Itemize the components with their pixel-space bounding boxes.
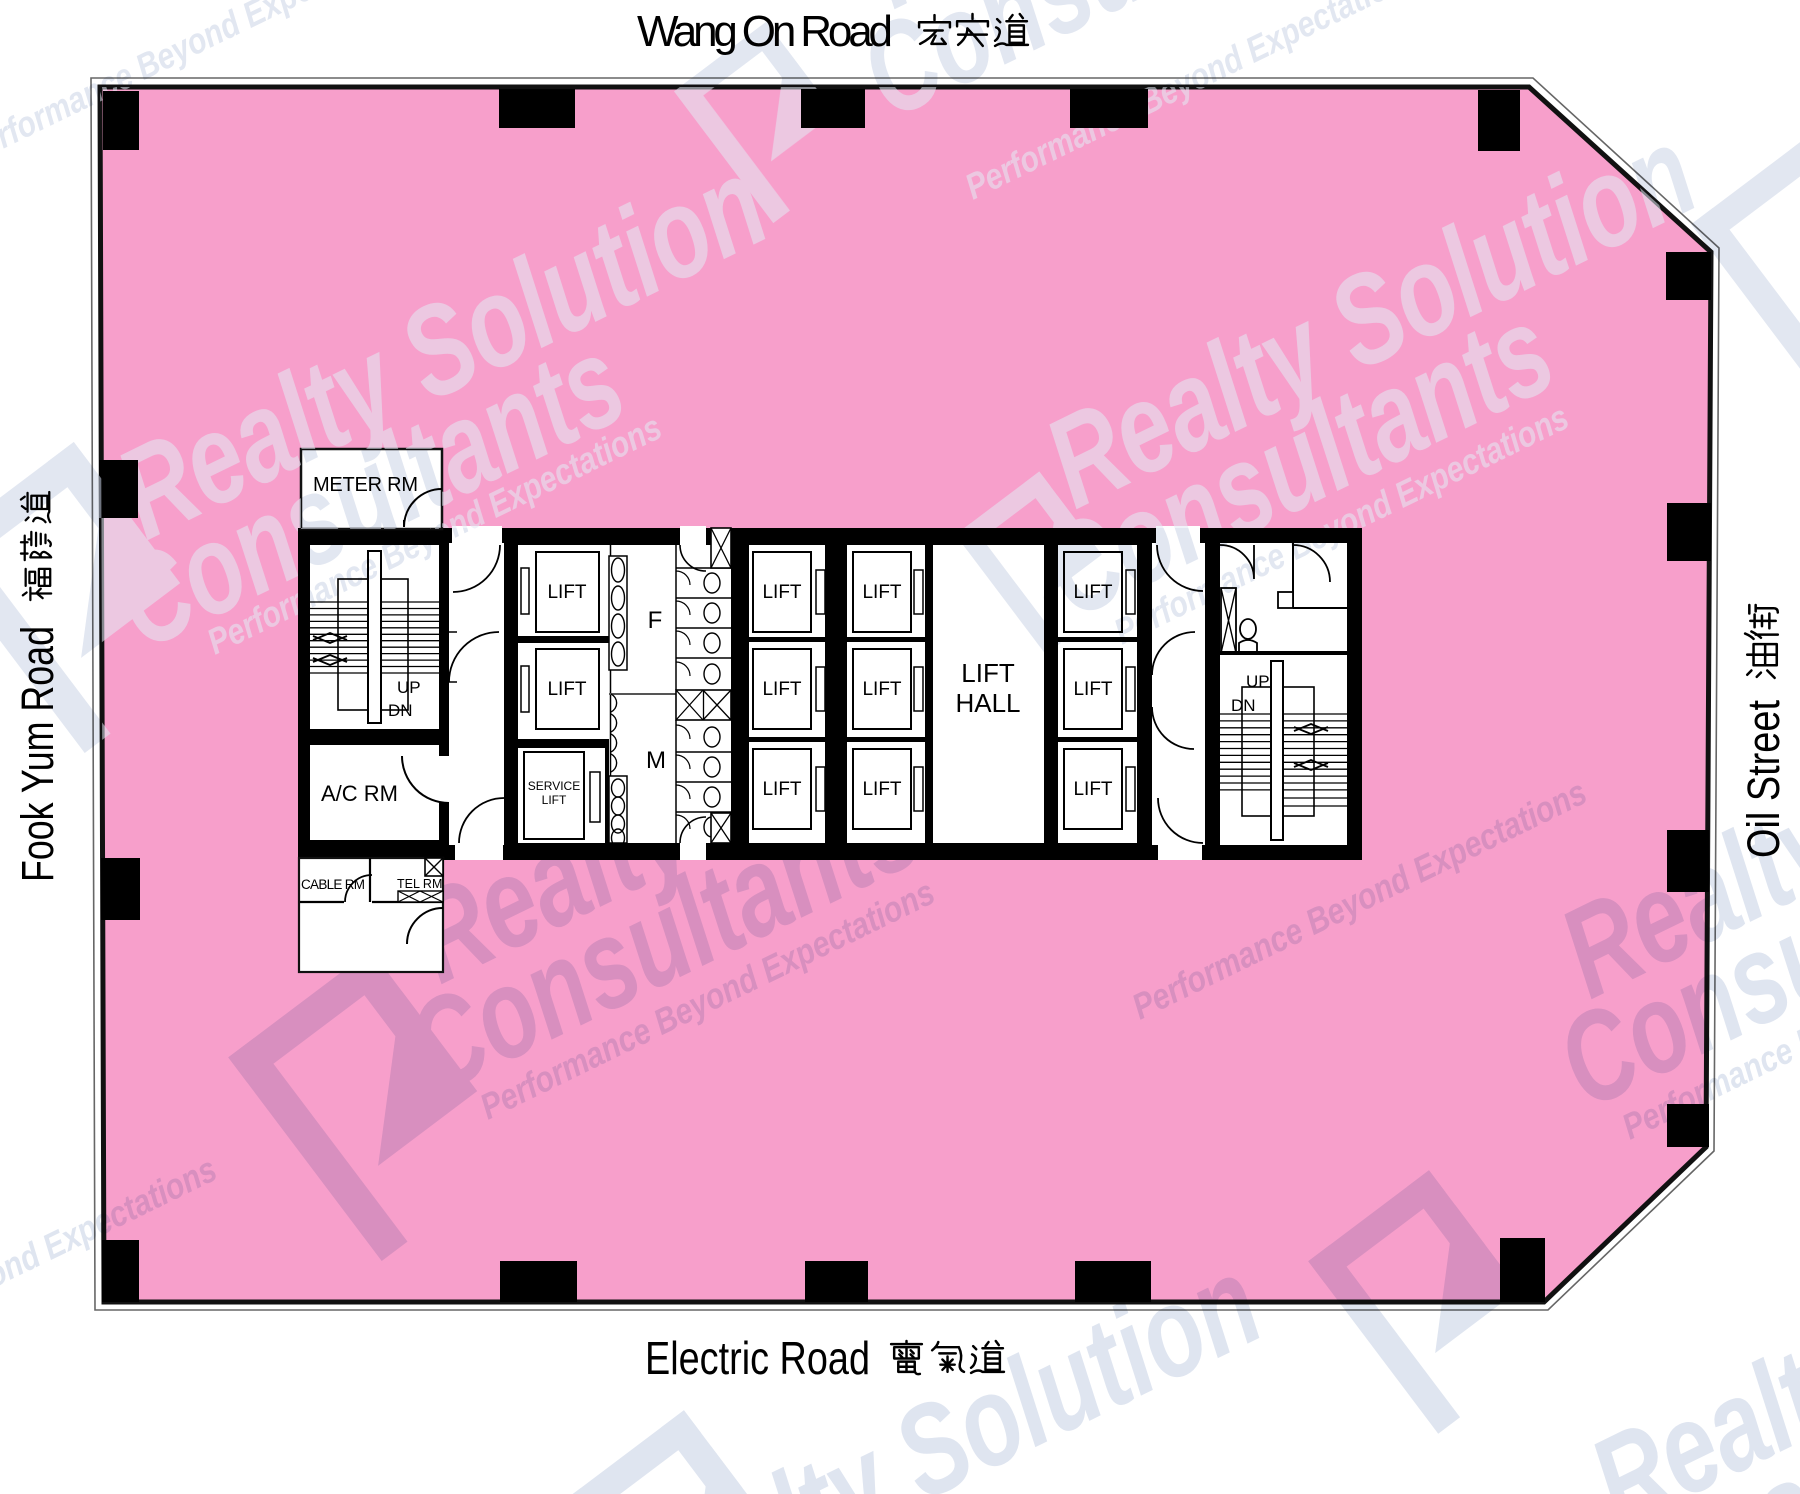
svg-text:Consultants: Consultants: [1022, 278, 1575, 645]
svg-text:Consultants: Consultants: [93, 309, 646, 676]
svg-text:Realty Solution: Realty Solution: [1025, 100, 1717, 535]
svg-text:Performance Beyond Expectation: Performance Beyond Expectations: [1108, 396, 1575, 652]
svg-text:Performance Beyond Expectation: Performance Beyond Expectations: [201, 406, 668, 662]
svg-text:Performance Beyond Expectation: Performance Beyond Expectations: [0, 0, 423, 172]
